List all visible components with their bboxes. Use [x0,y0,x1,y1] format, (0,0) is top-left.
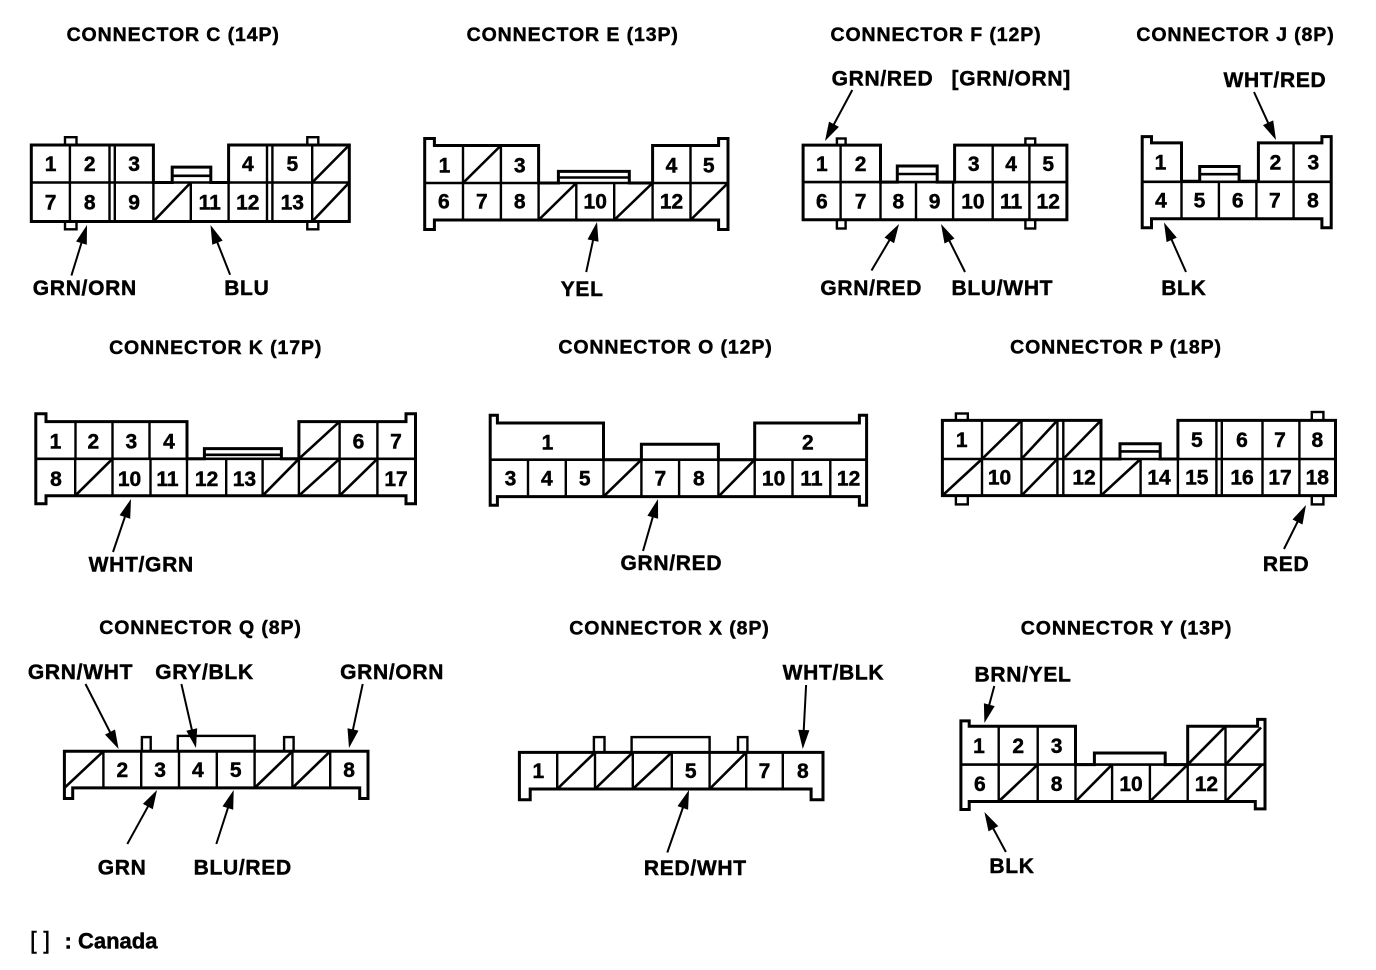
svg-text:8: 8 [1307,190,1319,213]
svg-text:CONNECTOR E (13P): CONNECTOR E (13P) [467,24,679,46]
svg-text:10: 10 [584,191,607,214]
svg-text:CONNECTOR O (12P): CONNECTOR O (12P) [558,337,772,359]
svg-text:17: 17 [1268,467,1291,490]
svg-text:8: 8 [693,468,705,491]
svg-text:6: 6 [974,773,986,796]
svg-text:11: 11 [1000,190,1023,213]
svg-text:8: 8 [892,190,904,213]
svg-text:GRN/WHT: GRN/WHT [28,661,133,684]
svg-text:2: 2 [1270,151,1282,174]
svg-text:7: 7 [1274,429,1286,452]
svg-text:4: 4 [163,431,175,454]
svg-text:12: 12 [837,468,860,491]
svg-text:2: 2 [88,431,100,454]
svg-text:[ ]:Canada: [ ]:Canada [30,928,158,955]
svg-text:8: 8 [84,191,96,214]
svg-text:7: 7 [45,191,57,214]
svg-text:12: 12 [195,468,218,491]
svg-text:RED/WHT: RED/WHT [644,857,747,880]
svg-text:CONNECTOR Q (8P): CONNECTOR Q (8P) [99,617,302,639]
svg-text:10: 10 [1119,773,1142,796]
svg-text:2: 2 [1012,735,1024,758]
svg-text:YEL: YEL [561,278,604,301]
svg-text:3: 3 [1307,151,1319,174]
svg-text:3: 3 [968,153,980,176]
svg-text:18: 18 [1306,467,1330,490]
svg-text:14: 14 [1147,467,1171,490]
svg-text:1: 1 [45,153,57,176]
svg-text:5: 5 [286,153,298,176]
svg-text:2: 2 [855,153,867,176]
svg-text:8: 8 [343,759,355,782]
svg-text:10: 10 [762,468,785,491]
svg-text:15: 15 [1185,467,1209,490]
svg-text:4: 4 [1155,190,1167,213]
svg-text:13: 13 [281,191,304,214]
svg-text:1: 1 [439,154,451,177]
svg-text:CONNECTOR Y (13P): CONNECTOR Y (13P) [1021,618,1232,640]
svg-text:BLU: BLU [224,277,269,300]
svg-text:13: 13 [233,468,256,491]
svg-text:WHT/RED: WHT/RED [1224,69,1327,92]
svg-text:4: 4 [666,154,678,177]
svg-text:5: 5 [579,468,591,491]
svg-text:5: 5 [1194,190,1206,213]
svg-text:5: 5 [703,154,715,177]
svg-text:8: 8 [1311,429,1323,452]
svg-text:GRN/RED: GRN/RED [621,552,723,575]
svg-text:12: 12 [1072,467,1095,490]
svg-text:4: 4 [1005,153,1017,176]
svg-text:7: 7 [476,191,488,214]
svg-text:7: 7 [1269,190,1281,213]
svg-text:10: 10 [118,468,141,491]
svg-text:CONNECTOR K (17P): CONNECTOR K (17P) [109,337,322,359]
svg-text:WHT/GRN: WHT/GRN [89,554,194,577]
svg-text:RED: RED [1263,553,1309,576]
svg-text:8: 8 [1051,773,1063,796]
svg-text:BLK: BLK [989,855,1034,878]
svg-text:17: 17 [384,468,407,491]
svg-text:5: 5 [230,759,242,782]
svg-text:BLU/WHT: BLU/WHT [952,277,1054,300]
svg-text:CONNECTOR P (18P): CONNECTOR P (18P) [1010,337,1222,359]
svg-text:9: 9 [929,190,941,213]
svg-text:8: 8 [50,468,62,491]
svg-text:12: 12 [1195,773,1218,796]
svg-text:4: 4 [192,759,204,782]
svg-text:3: 3 [514,154,526,177]
svg-text:1: 1 [956,429,968,452]
svg-text:11: 11 [800,468,823,491]
svg-text:10: 10 [961,190,984,213]
svg-text:1: 1 [542,432,554,455]
svg-text:2: 2 [84,153,96,176]
svg-text:5: 5 [1191,429,1203,452]
svg-text:7: 7 [855,190,867,213]
svg-text:1: 1 [816,153,828,176]
svg-text:6: 6 [816,190,828,213]
svg-text:GRN/RED: GRN/RED [820,277,922,300]
svg-text:3: 3 [154,759,166,782]
svg-text:4: 4 [541,468,553,491]
svg-text:CONNECTOR C (14P): CONNECTOR C (14P) [67,24,280,46]
svg-text:5: 5 [685,760,697,783]
svg-text:3: 3 [128,153,140,176]
svg-text:6: 6 [438,191,450,214]
svg-text:7: 7 [390,431,402,454]
svg-text:1: 1 [50,431,62,454]
svg-text:12: 12 [1037,190,1060,213]
svg-text:GRN: GRN [98,857,147,880]
svg-text:8: 8 [797,760,809,783]
svg-text:6: 6 [1236,429,1248,452]
svg-text:GRN/ORN: GRN/ORN [33,277,137,300]
svg-text:GRN/RED: GRN/RED [832,68,934,91]
svg-text:12: 12 [660,191,683,214]
svg-text:8: 8 [514,191,526,214]
svg-text:7: 7 [759,760,771,783]
svg-text:1: 1 [1155,151,1167,174]
svg-text:GRN/ORN: GRN/ORN [340,661,444,684]
svg-text:2: 2 [802,432,814,455]
svg-text:11: 11 [199,191,222,214]
svg-text:BRN/YEL: BRN/YEL [975,664,1072,687]
svg-text:9: 9 [128,191,140,214]
svg-text:[GRN/ORN]: [GRN/ORN] [952,68,1071,91]
svg-text:3: 3 [125,431,137,454]
svg-text:3: 3 [1051,735,1063,758]
svg-text:4: 4 [242,153,254,176]
svg-text:3: 3 [505,468,517,491]
svg-text:10: 10 [988,467,1011,490]
svg-text:BLK: BLK [1161,277,1206,300]
svg-text:12: 12 [236,191,259,214]
svg-text:BLU/RED: BLU/RED [194,857,292,880]
svg-text:6: 6 [1232,190,1244,213]
svg-text:CONNECTOR F (12P): CONNECTOR F (12P) [830,24,1041,46]
svg-text:CONNECTOR J (8P): CONNECTOR J (8P) [1136,24,1334,46]
svg-text:1: 1 [973,735,985,758]
svg-text:GRY/BLK: GRY/BLK [155,661,254,684]
svg-text:2: 2 [116,759,128,782]
svg-text:CONNECTOR X (8P): CONNECTOR X (8P) [569,618,769,640]
svg-text:5: 5 [1042,153,1054,176]
svg-text:11: 11 [156,468,179,491]
svg-text:7: 7 [654,468,666,491]
svg-text:WHT/BLK: WHT/BLK [783,662,885,685]
svg-text:16: 16 [1230,467,1253,490]
svg-text:1: 1 [532,760,544,783]
svg-text:6: 6 [353,431,365,454]
